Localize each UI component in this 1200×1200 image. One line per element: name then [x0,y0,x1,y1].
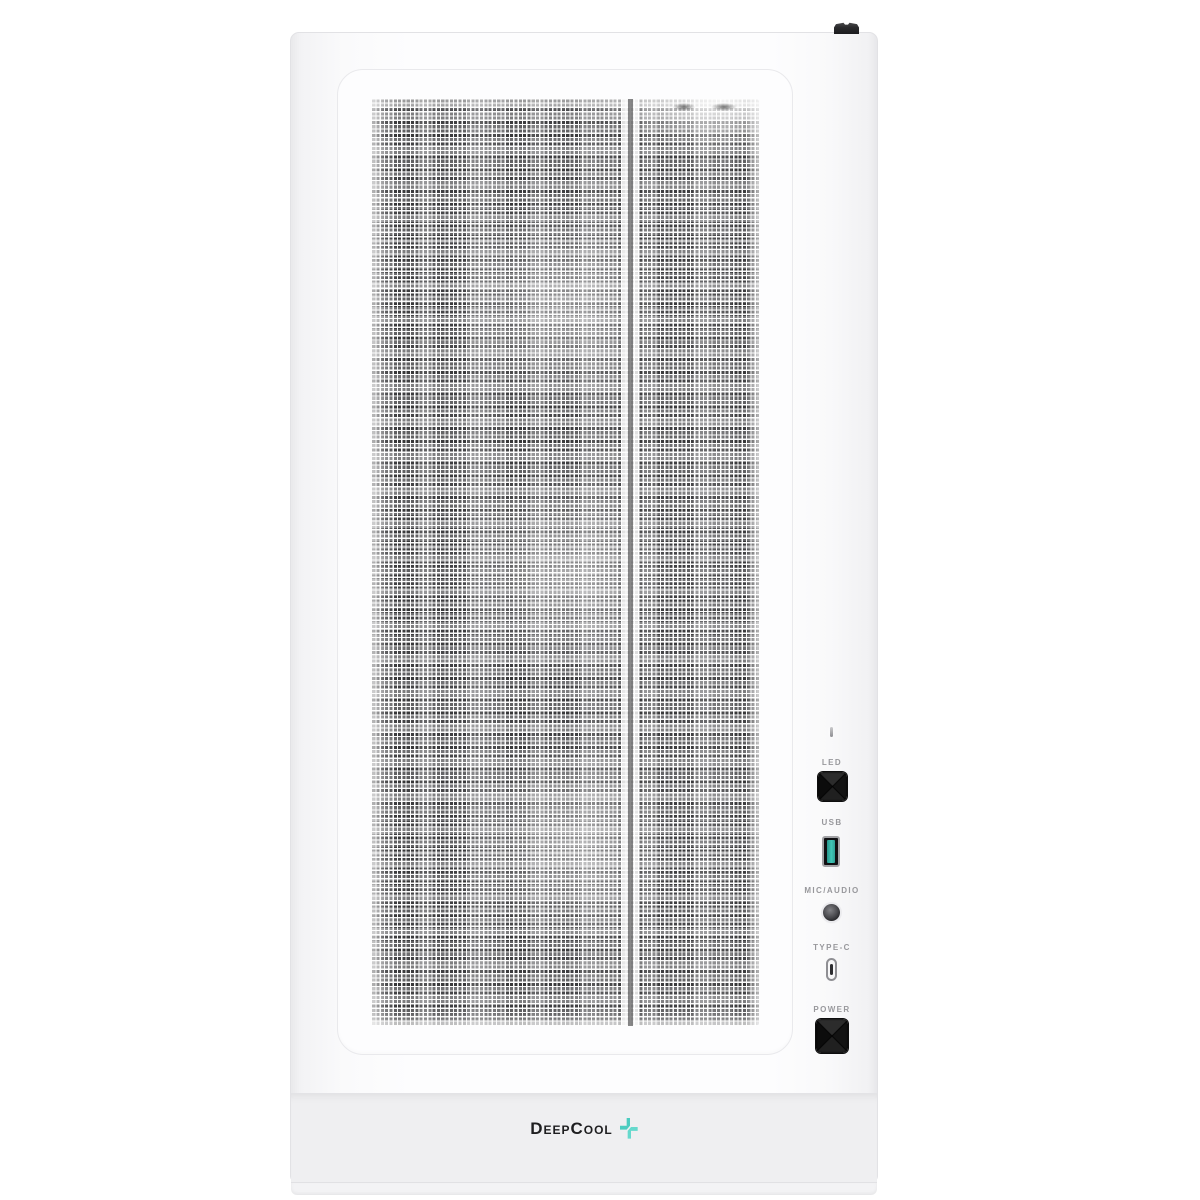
top-knob [834,22,859,34]
brand-logo: DeepCool [291,1118,877,1139]
pc-case-front: LED USB MIC/AUDIO TYPE-C POWER DeepCool [290,32,878,1182]
product-photo-page: { "io_panel": { "indicator_icon": "hdd-a… [0,0,1200,1200]
usb-type-c-slot [830,964,833,975]
bottom-bezel: DeepCool [291,1093,877,1183]
usb-tongue [827,840,835,863]
led-port-label: LED [782,758,882,768]
mesh-front-panel [371,99,759,1026]
led-button [818,772,847,801]
type-c-label: TYPE-C [782,943,882,953]
usb-a-port [822,836,840,867]
hdd-activity-led-icon [830,727,833,737]
mic-audio-label: MIC/AUDIO [782,886,882,896]
logo-wordmark: DeepCool [530,1119,613,1139]
power-button [816,1019,848,1053]
plus-icon [620,1118,638,1139]
usb-type-c-port [826,958,837,981]
usb-port-label: USB [782,818,882,828]
bottom-lip [291,1182,877,1195]
audio-jack-icon [823,904,840,921]
power-label: POWER [782,1005,882,1015]
